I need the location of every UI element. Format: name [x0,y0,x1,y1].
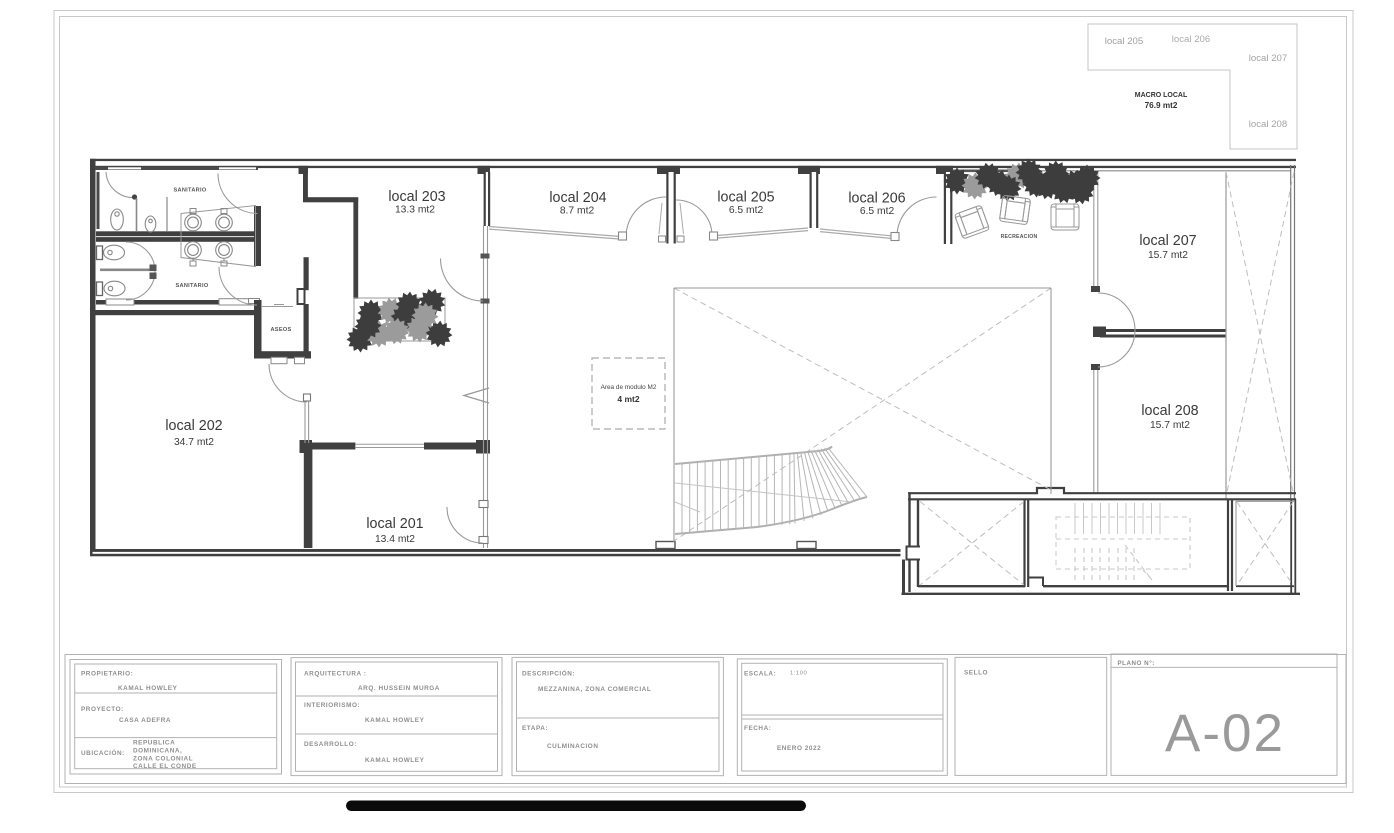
svg-text:ARQ. HUSSEIN MURGA: ARQ. HUSSEIN MURGA [358,685,440,692]
svg-text:local 205: local 205 [717,190,774,206]
svg-text:DOMINICANA,: DOMINICANA, [133,748,182,755]
svg-text:ENERO 2022: ENERO 2022 [777,745,821,752]
svg-text:ESCALA:: ESCALA: [744,671,776,678]
svg-text:UBICACIÓN:: UBICACIÓN: [81,748,125,757]
svg-text:PROYECTO:: PROYECTO: [81,706,124,713]
svg-text:76.9 mt2: 76.9 mt2 [1145,101,1178,110]
svg-text:ARQUITECTURA :: ARQUITECTURA : [304,671,367,678]
svg-text:MEZZANINA, ZONA COMERCIAL: MEZZANINA, ZONA COMERCIAL [538,686,651,693]
svg-text:MACRO LOCAL: MACRO LOCAL [1135,92,1188,99]
svg-text:local 205: local 205 [1105,36,1143,47]
svg-text:local 208: local 208 [1141,403,1198,419]
svg-text:CULMINACION: CULMINACION [547,743,599,750]
svg-text:1:100: 1:100 [790,671,807,677]
svg-text:13.4 mt2: 13.4 mt2 [375,534,415,545]
svg-text:local 203: local 203 [388,189,445,205]
svg-text:13.3 mt2: 13.3 mt2 [395,205,435,216]
svg-text:local 208: local 208 [1249,119,1287,130]
svg-text:CALLE EL CONDE: CALLE EL CONDE [133,763,197,770]
svg-text:4 mt2: 4 mt2 [617,394,639,404]
svg-text:8.7 mt2: 8.7 mt2 [560,206,595,217]
svg-text:INTERIORISMO:: INTERIORISMO: [304,702,360,709]
svg-text:local 206: local 206 [848,191,905,207]
svg-text:Area de modulo M2: Area de modulo M2 [601,384,657,391]
svg-text:SANITARIO: SANITARIO [175,283,208,289]
svg-text:local 206: local 206 [1172,34,1210,45]
svg-text:SELLO: SELLO [964,670,988,677]
svg-text:KAMAL HOWLEY: KAMAL HOWLEY [118,685,178,692]
svg-text:PROPIETARIO:: PROPIETARIO: [81,671,133,678]
svg-text:ASEOS: ASEOS [270,327,291,333]
svg-text:CASA ADEFRA: CASA ADEFRA [119,717,171,724]
svg-text:KAMAL HOWLEY: KAMAL HOWLEY [365,717,425,724]
svg-text:DESARROLLO:: DESARROLLO: [304,741,357,748]
svg-text:FECHA:: FECHA: [744,725,771,732]
svg-text:local 204: local 204 [549,190,606,206]
svg-text:KAMAL HOWLEY: KAMAL HOWLEY [365,757,425,764]
svg-text:local 202: local 202 [165,418,222,434]
svg-text:34.7 mt2: 34.7 mt2 [174,437,214,448]
svg-text:RECREACION: RECREACION [1001,234,1038,240]
svg-text:local 207: local 207 [1249,53,1287,64]
svg-text:SANITARIO: SANITARIO [173,188,206,194]
svg-text:local 201: local 201 [366,516,423,532]
svg-text:REPUBLICA: REPUBLICA [133,740,175,747]
svg-text:local 207: local 207 [1139,233,1196,249]
svg-text:ZONA COLONIAL: ZONA COLONIAL [133,756,193,763]
svg-text:15.7 mt2: 15.7 mt2 [1148,250,1188,261]
svg-text:PLANO N°:: PLANO N°: [1118,660,1155,667]
svg-text:6.5 mt2: 6.5 mt2 [860,206,895,217]
svg-text:ETAPA:: ETAPA: [522,725,548,732]
svg-text:6.5 mt2: 6.5 mt2 [729,205,764,216]
svg-text:15.7 mt2: 15.7 mt2 [1150,420,1190,431]
svg-text:A-02: A-02 [1165,704,1285,763]
svg-text:DESCRIPCIÓN:: DESCRIPCIÓN: [522,669,575,678]
